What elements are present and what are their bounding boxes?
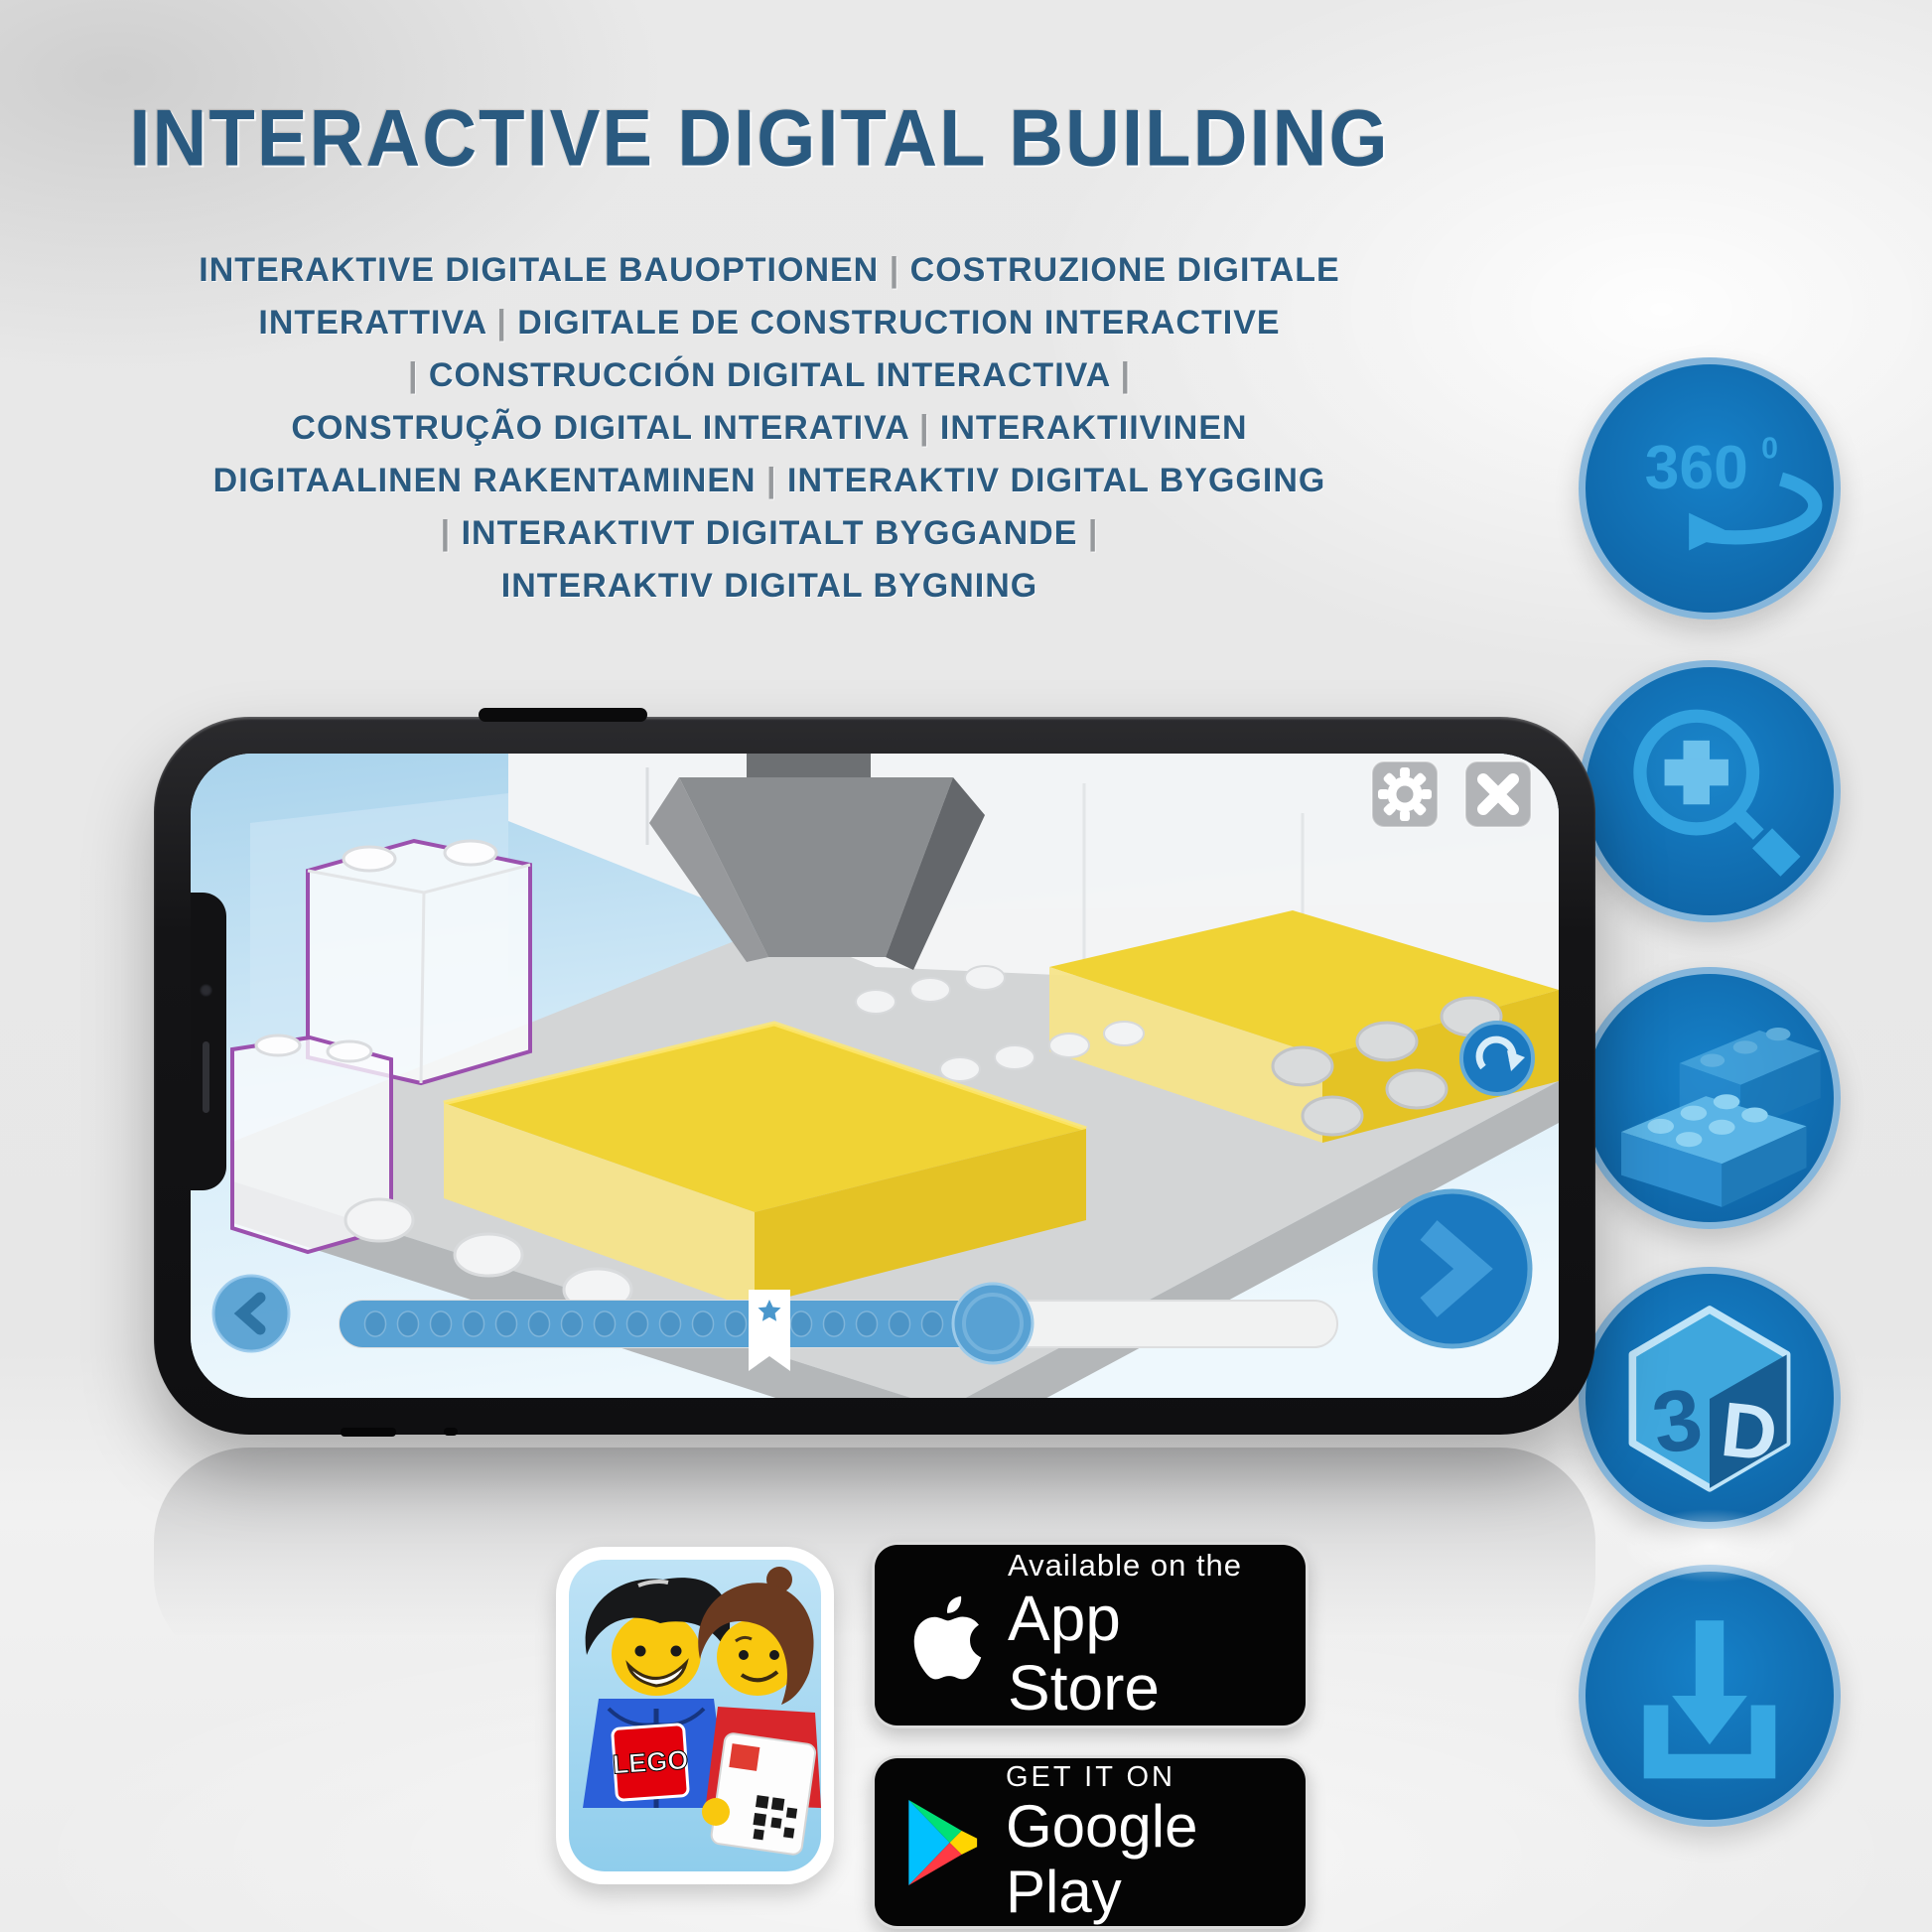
- subtitle-block: INTERAKTIVE DIGITALE BAUOPTIONEN | COSTR…: [199, 244, 1340, 613]
- app-store-title: App Store: [1008, 1584, 1288, 1723]
- brick-building-icon: [1579, 967, 1841, 1229]
- mic-port: [444, 1428, 458, 1436]
- building-scene: [191, 754, 1559, 1398]
- 360-rotation-icon: 360 0: [1579, 357, 1841, 620]
- promo-poster: INTERACTIVE DIGITAL BUILDING INTERAKTIVE…: [0, 0, 1932, 1932]
- 3d-view-icon: 3 D: [1579, 1267, 1841, 1529]
- download-glyph: [1586, 1572, 1834, 1820]
- camera-dot: [200, 984, 212, 997]
- google-play-title: Google Play: [1006, 1794, 1292, 1925]
- lego-logo-text: LEGO: [612, 1744, 689, 1779]
- google-play-icon: [898, 1795, 984, 1890]
- next-step-button[interactable]: [1375, 1191, 1530, 1346]
- degree-label: 0: [1761, 433, 1778, 466]
- google-play-tagline: GET IT ON: [1006, 1760, 1292, 1794]
- phone-notch: [191, 893, 226, 1190]
- previous-step-button[interactable]: [213, 1276, 289, 1351]
- zoom-in-icon: [1579, 660, 1841, 922]
- icon-reflection: [1623, 1509, 1798, 1583]
- google-play-badge[interactable]: GET IT ON Google Play: [872, 1755, 1309, 1929]
- bricks-glyph: [1586, 974, 1834, 1222]
- lego-app-artwork: LEGO: [569, 1560, 821, 1871]
- speaker-slit: [203, 1041, 209, 1113]
- settings-button[interactable]: [1372, 761, 1438, 827]
- subtitle-line: | CONSTRUCCIÓN DIGITAL INTERACTIVA |: [199, 349, 1340, 402]
- subtitle-line: INTERAKTIVE DIGITALE BAUOPTIONEN | COSTR…: [199, 244, 1340, 297]
- app-store-badge[interactable]: Available on the App Store: [872, 1542, 1309, 1728]
- speaker-port: [341, 1428, 396, 1437]
- download-icon: [1579, 1565, 1841, 1827]
- 360-label: 360: [1645, 433, 1748, 502]
- magnifier-glyph: [1586, 667, 1834, 915]
- subtitle-line: INTERATTIVA | DIGITALE DE CONSTRUCTION I…: [199, 297, 1340, 349]
- rotate-button[interactable]: [1461, 1023, 1533, 1094]
- cube-right-letter: D: [1718, 1387, 1782, 1477]
- apple-icon: [902, 1584, 986, 1687]
- lego-app-icon[interactable]: LEGO: [556, 1547, 834, 1884]
- phone-mockup: [154, 717, 1595, 1435]
- subtitle-line: | INTERAKTIVT DIGITALT BYGGANDE |: [199, 507, 1340, 560]
- page-title: INTERACTIVE DIGITAL BUILDING: [69, 92, 1449, 184]
- progress-knob[interactable]: [953, 1284, 1033, 1363]
- 3d-cube-glyph: 3 D: [1586, 1274, 1834, 1522]
- app-store-tagline: Available on the: [1008, 1548, 1288, 1584]
- 360-rotation-glyph: 360 0: [1586, 364, 1834, 613]
- subtitle-line: CONSTRUÇÃO DIGITAL INTERATIVA | INTERAKT…: [199, 402, 1340, 455]
- subtitle-line: INTERAKTIV DIGITAL BYGNING: [199, 560, 1340, 613]
- phone-side-button: [479, 708, 647, 722]
- close-button[interactable]: [1465, 761, 1531, 827]
- subtitle-line: DIGITAALINEN RAKENTAMINEN | INTERAKTIV D…: [199, 455, 1340, 507]
- phone-screen: [191, 754, 1559, 1398]
